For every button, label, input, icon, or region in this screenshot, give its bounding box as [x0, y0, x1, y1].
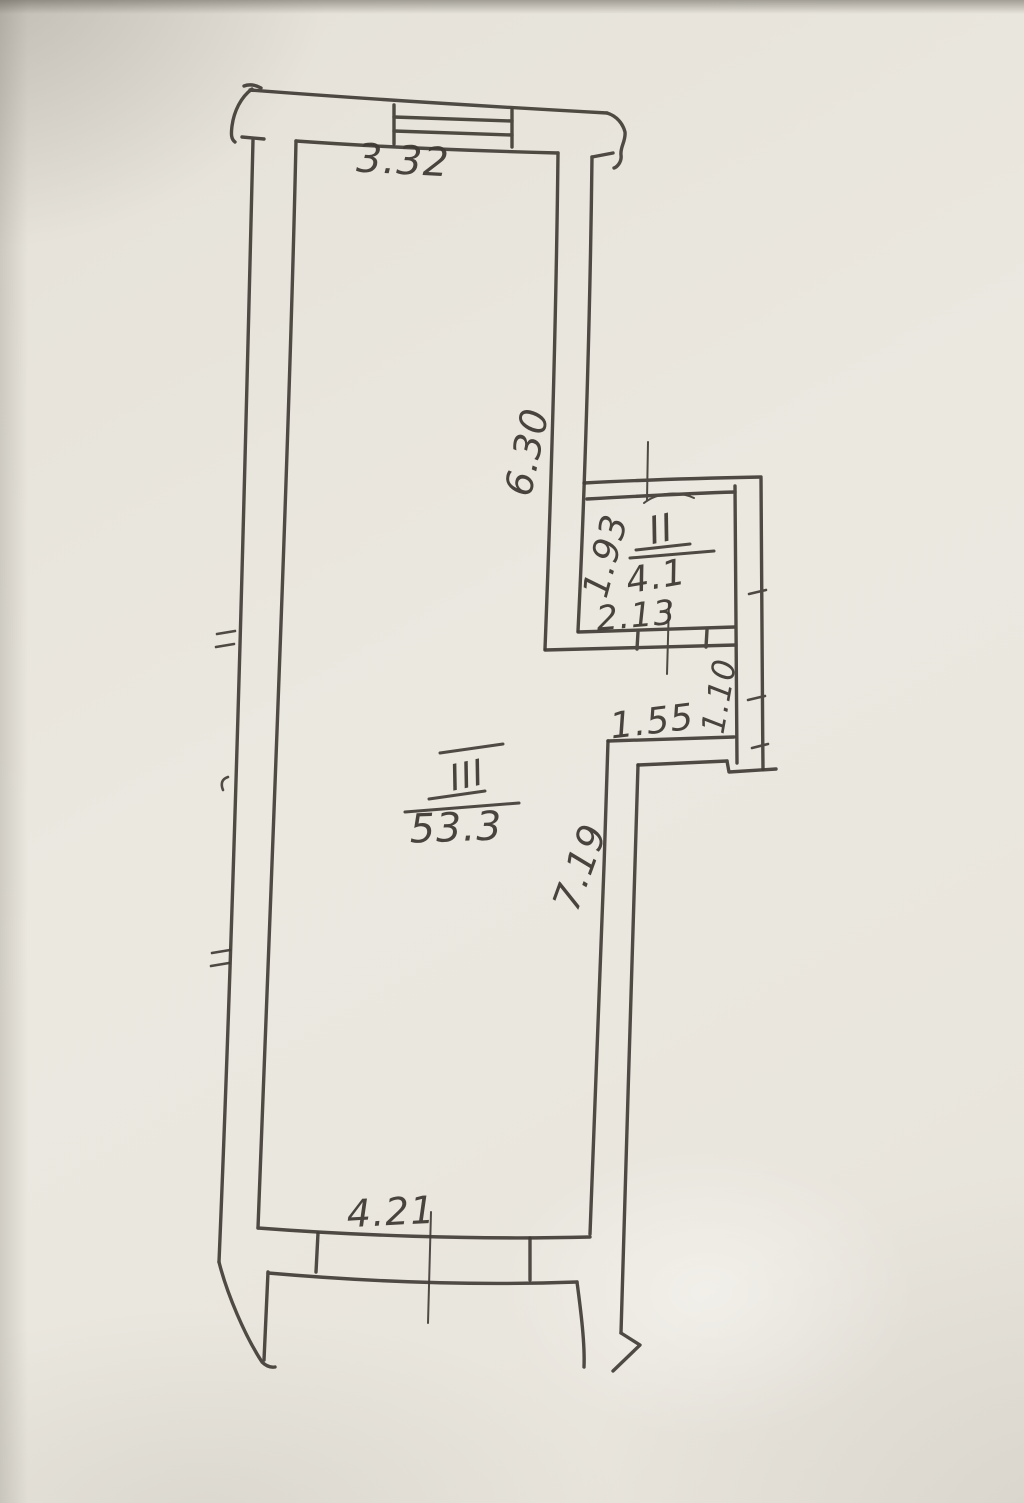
wall-right-lower-outer: [621, 765, 638, 1333]
floor-plan-photo: 3.32 6.30 1.93 II 4.1 2.13 1.55 1.10 III…: [0, 0, 1024, 1503]
room-3-walls: [258, 141, 613, 1238]
bay-right-edge: [577, 1282, 584, 1367]
top-window-pane-line: [394, 117, 512, 121]
room2-right-wall-inner: [735, 486, 737, 763]
tick-mark: [212, 950, 230, 953]
room-2-numeral: II: [644, 505, 677, 553]
room3-numeral-overline: [440, 744, 503, 753]
wall-top-right-hook: [607, 113, 625, 168]
tick-mark: [217, 631, 235, 634]
wall-right-lower-inner: [590, 741, 608, 1234]
right-wall-tick: [752, 744, 768, 748]
room-3-numeral: III: [446, 752, 489, 799]
wall-right-lower-taper: [613, 1333, 640, 1371]
room2-top-wall-upper: [584, 477, 761, 483]
dimension-upper-right-wall: 6.30: [496, 404, 557, 500]
alcove-step-cap: [727, 761, 776, 772]
door-leaf-line: [647, 442, 648, 500]
floorplan-svg: 3.32 6.30 1.93 II 4.1 2.13 1.55 1.10 III…: [0, 0, 1024, 1503]
dimension-room2-bottom: 2.13: [595, 593, 678, 640]
wall-top-inner-stub: [592, 153, 613, 157]
tick-mark: [211, 963, 229, 966]
room2-right-wall-outer: [761, 478, 763, 769]
tick-curl: [222, 777, 228, 790]
tick-mark: [216, 644, 234, 647]
room-3-area: 53.3: [409, 803, 504, 852]
outer-walls: [219, 85, 640, 1371]
bottom-opening-divider: [316, 1233, 318, 1272]
wall-left-outer: [219, 140, 253, 1262]
door-threshold-right: [706, 630, 707, 647]
bay-left-edge: [264, 1272, 268, 1360]
top-window-pane-line: [394, 131, 512, 135]
wall-right-upper-inner: [545, 153, 558, 649]
dimension-top-width: 3.32: [355, 136, 450, 187]
wall-left-inner: [258, 141, 296, 1228]
wall-top-left-curl: [231, 89, 252, 142]
alcove-bottom-wall-lower: [638, 761, 727, 765]
wall-top-outer: [250, 90, 607, 113]
window-symbols: [316, 105, 530, 1323]
dimension-bottom-width: 4.21: [346, 1188, 437, 1237]
